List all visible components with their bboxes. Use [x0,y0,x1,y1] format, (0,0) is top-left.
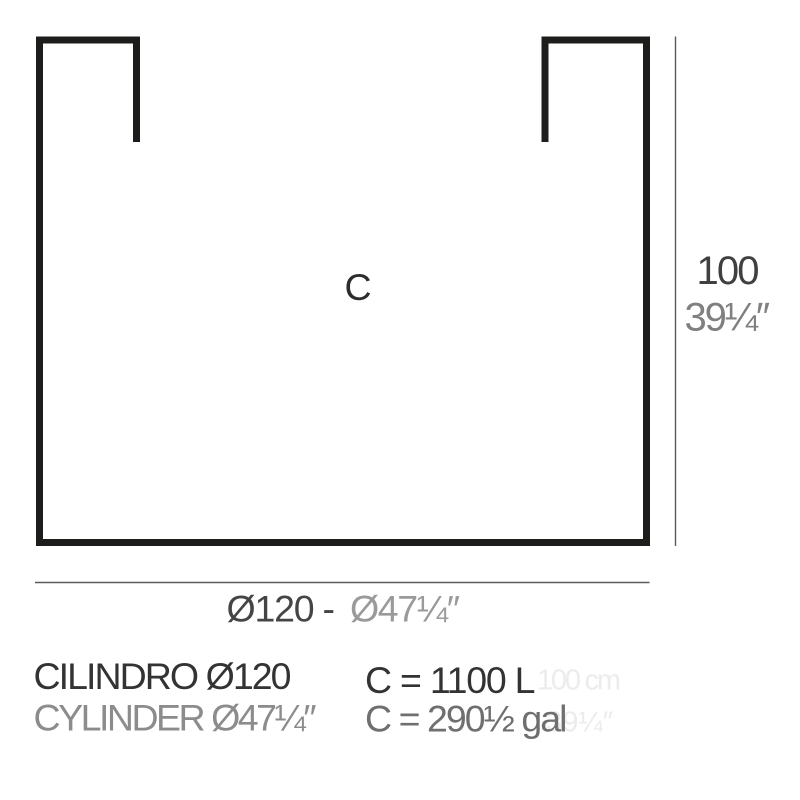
svg-text:100: 100 [697,249,760,293]
svg-text:C: C [345,266,372,308]
svg-text:100 cm: 100 cm [537,665,621,697]
svg-text:CYLINDER Ø47¼″: CYLINDER Ø47¼″ [34,697,317,739]
svg-text:C = 1100 L: C = 1100 L [365,659,536,701]
svg-text:Ø120 -: Ø120 - [227,588,336,630]
svg-text:Ø47¼″: Ø47¼″ [350,588,460,630]
svg-text:39¼″: 39¼″ [685,296,771,340]
svg-text:C = 290½ gal: C = 290½ gal [365,698,568,740]
svg-text:CILINDRO Ø120: CILINDRO Ø120 [34,655,292,697]
